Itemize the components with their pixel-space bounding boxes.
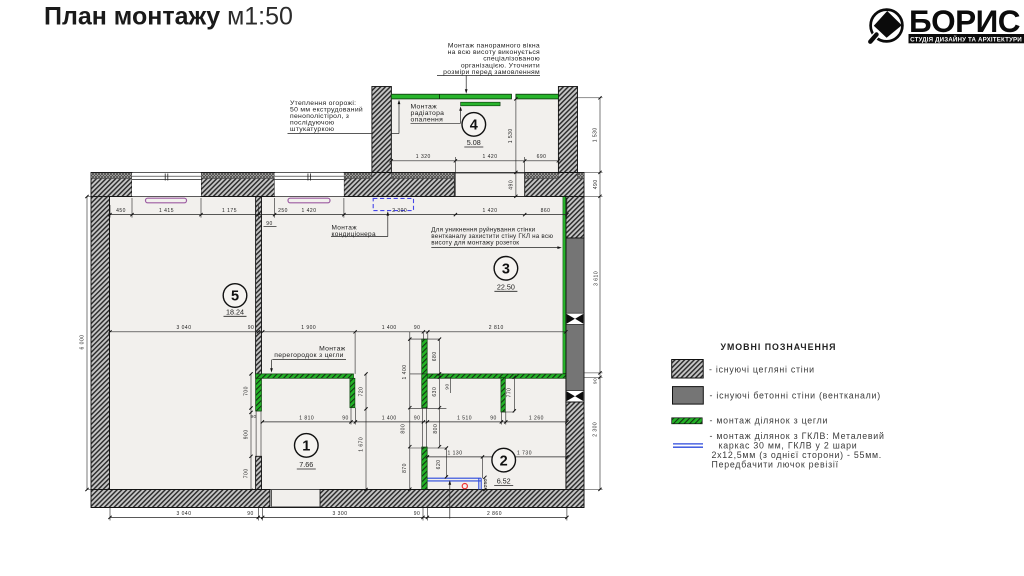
svg-text:2 300: 2 300 — [392, 208, 407, 214]
svg-text:90: 90 — [592, 378, 597, 384]
svg-text:90: 90 — [342, 415, 349, 421]
svg-text:1 900: 1 900 — [301, 325, 316, 331]
svg-text:опалення: опалення — [411, 117, 444, 124]
svg-text:90: 90 — [250, 414, 256, 419]
svg-text:870: 870 — [402, 463, 408, 473]
svg-text:План монтажу м1:50: План монтажу м1:50 — [44, 3, 293, 31]
svg-text:штукатуркою: штукатуркою — [290, 126, 334, 133]
svg-text:90: 90 — [445, 383, 450, 389]
svg-text:2: 2 — [500, 453, 508, 469]
svg-text:22.50: 22.50 — [497, 283, 515, 292]
svg-text:5: 5 — [231, 289, 239, 305]
svg-text:1 420: 1 420 — [482, 154, 497, 160]
svg-text:690: 690 — [537, 154, 547, 160]
svg-text:Передбачити лючок ревізії: Передбачити лючок ревізії — [712, 460, 839, 470]
svg-text:18.24: 18.24 — [226, 308, 244, 317]
svg-text:6.52: 6.52 — [497, 477, 511, 486]
svg-text:1 530: 1 530 — [592, 127, 598, 142]
svg-text:1 400: 1 400 — [382, 415, 397, 421]
svg-text:90: 90 — [414, 325, 421, 331]
svg-text:1 130: 1 130 — [447, 450, 462, 456]
svg-text:2 300: 2 300 — [592, 422, 598, 437]
svg-text:1 415: 1 415 — [159, 208, 174, 214]
svg-text:720: 720 — [358, 387, 364, 397]
svg-text:3 040: 3 040 — [176, 325, 191, 331]
svg-text:1 320: 1 320 — [416, 154, 431, 160]
svg-text:630: 630 — [432, 387, 438, 397]
svg-text:770: 770 — [507, 388, 513, 398]
svg-text:2 860: 2 860 — [487, 511, 502, 517]
svg-text:490: 490 — [593, 179, 599, 189]
svg-text:- існуючі бетонні стіни (вент: - існуючі бетонні стіни (вентканали) — [710, 390, 881, 400]
svg-text:250: 250 — [278, 208, 288, 214]
svg-text:2 810: 2 810 — [489, 325, 504, 331]
svg-text:БОРИС: БОРИС — [909, 3, 1020, 39]
svg-text:90: 90 — [414, 415, 421, 421]
svg-text:1 530: 1 530 — [508, 128, 514, 143]
svg-text:90: 90 — [247, 511, 254, 517]
svg-text:1 420: 1 420 — [482, 208, 497, 214]
svg-text:620: 620 — [436, 459, 442, 469]
svg-text:- монтаж ділянок з ГКЛВ: Метал: - монтаж ділянок з ГКЛВ: Металевий — [710, 431, 885, 441]
svg-text:860: 860 — [541, 208, 551, 214]
svg-text:3 300: 3 300 — [332, 511, 347, 517]
svg-text:перегородок з цегли: перегородок з цегли — [274, 352, 344, 359]
svg-text:СТУДІЯ ДИЗАЙНУ ТА АРХІТЕКТУРИ: СТУДІЯ ДИЗАЙНУ ТА АРХІТЕКТУРИ — [910, 35, 1022, 43]
svg-text:1 260: 1 260 — [529, 415, 544, 421]
svg-text:- монтаж ділянок з цегли: - монтаж ділянок з цегли — [710, 416, 829, 426]
svg-text:3 610: 3 610 — [593, 271, 599, 286]
svg-text:1 400: 1 400 — [382, 325, 397, 331]
svg-text:450: 450 — [116, 208, 126, 214]
svg-text:1 730: 1 730 — [517, 450, 532, 456]
svg-text:250: 250 — [483, 478, 488, 487]
svg-text:900: 900 — [243, 429, 249, 439]
svg-text:1: 1 — [302, 439, 310, 455]
svg-text:1 420: 1 420 — [301, 208, 316, 214]
svg-text:7.66: 7.66 — [299, 460, 313, 469]
svg-text:1 510: 1 510 — [457, 415, 472, 421]
svg-text:90: 90 — [248, 325, 255, 331]
svg-text:90: 90 — [414, 511, 421, 517]
svg-text:3 040: 3 040 — [176, 511, 191, 517]
svg-text:90: 90 — [266, 221, 273, 227]
svg-text:490: 490 — [508, 180, 514, 190]
svg-text:680: 680 — [432, 351, 438, 361]
svg-text:6 000: 6 000 — [79, 334, 85, 349]
svg-text:1 670: 1 670 — [358, 437, 364, 452]
svg-text:5.08: 5.08 — [467, 138, 481, 147]
svg-text:4: 4 — [470, 118, 478, 134]
svg-text:90: 90 — [490, 415, 497, 421]
svg-text:2х12,5мм (з однієї сторони) -: 2х12,5мм (з однієї сторони) - 55мм. — [712, 450, 882, 460]
svg-text:висоту для монтажу розеток: висоту для монтажу розеток — [431, 240, 519, 247]
svg-text:1 810: 1 810 — [299, 415, 314, 421]
svg-text:розміри перед замовленням: розміри перед замовленням — [443, 68, 540, 76]
svg-text:1 400: 1 400 — [402, 364, 408, 379]
svg-text:700: 700 — [243, 468, 249, 478]
svg-text:700: 700 — [243, 386, 249, 396]
svg-text:каркас 30 мм, ГКЛВ у 2 шари: каркас 30 мм, ГКЛВ у 2 шари — [719, 440, 858, 450]
svg-text:3: 3 — [502, 262, 510, 278]
svg-text:УМОВНІ ПОЗНАЧЕННЯ: УМОВНІ ПОЗНАЧЕННЯ — [720, 342, 836, 352]
svg-text:- існуючі цегляні стіни: - існуючі цегляні стіни — [709, 364, 815, 374]
svg-text:800: 800 — [401, 424, 407, 434]
svg-text:1 175: 1 175 — [222, 208, 237, 214]
svg-text:800: 800 — [433, 424, 439, 434]
